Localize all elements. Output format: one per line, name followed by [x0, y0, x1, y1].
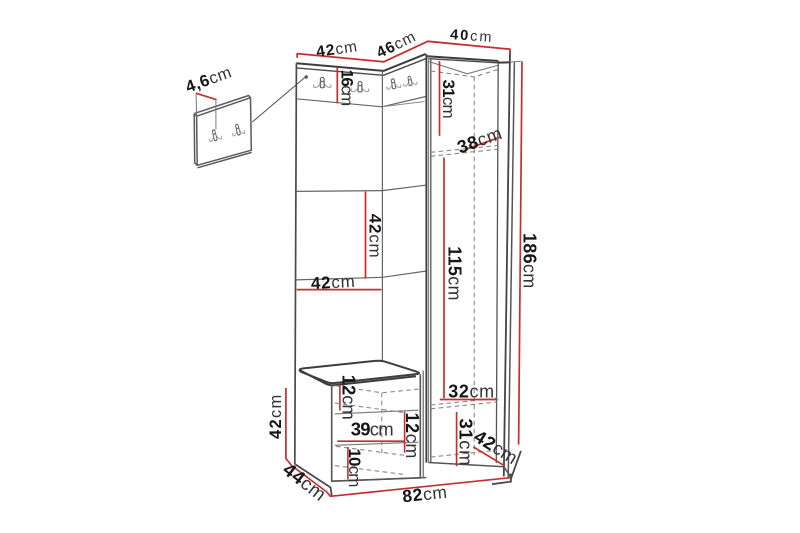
svg-text:12cm: 12cm [402, 413, 422, 459]
svg-text:42cm: 42cm [267, 393, 285, 439]
svg-text:32cm: 32cm [448, 382, 494, 402]
svg-text:42cm: 42cm [310, 272, 356, 293]
svg-text:42cm: 42cm [366, 214, 385, 259]
svg-text:16cm: 16cm [337, 70, 356, 107]
svg-text:31cm: 31cm [439, 80, 458, 119]
svg-text:10cm: 10cm [345, 449, 364, 488]
svg-text:115cm: 115cm [444, 246, 464, 301]
svg-text:40cm: 40cm [450, 27, 494, 46]
svg-text:12cm: 12cm [339, 375, 360, 420]
svg-text:39cm: 39cm [351, 419, 393, 440]
svg-text:186cm: 186cm [520, 233, 540, 289]
